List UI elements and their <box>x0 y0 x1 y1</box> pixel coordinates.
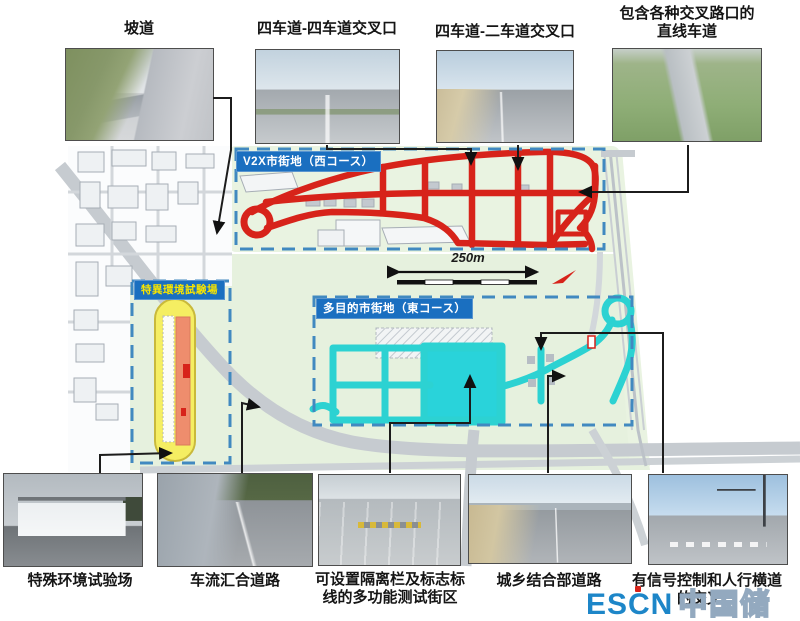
straight-lanes-photo <box>612 48 762 142</box>
east-course-label: 多目的市街地（東コース） <box>316 298 473 319</box>
multifunction-test-block-photo <box>318 474 461 566</box>
ramp-photo <box>65 48 214 141</box>
four-two-intersection-caption: 四车道-二车道交叉口 <box>405 23 605 41</box>
barrier-markers <box>358 522 420 528</box>
signal-crosswalk-intersection-photo <box>648 474 788 565</box>
watermark-site-name: 中国储能网 <box>678 581 800 621</box>
watermark-accent-icon <box>635 586 641 592</box>
four-four-intersection-caption: 四车道-四车道交叉口 <box>227 20 427 38</box>
special-environment-track <box>155 299 195 461</box>
urban-rural-road-photo <box>468 474 632 564</box>
special-env-label: 特異環境試験場 <box>134 280 225 300</box>
watermark-logo: ESCN <box>586 588 673 621</box>
merging-road-photo <box>157 473 313 567</box>
west-course-label: V2X市街地（西コース） <box>236 151 381 172</box>
watermark: ESCN 中国储能网 <box>586 581 800 621</box>
four-two-intersection-photo <box>436 50 574 143</box>
scale-label: 250m <box>438 250 498 265</box>
straight-lanes-caption: 包含各种交叉路口的 直线车道 <box>587 5 787 42</box>
ramp-caption: 坡道 <box>39 20 239 38</box>
special-environment-building-photo <box>3 473 143 567</box>
proving-ground-infographic: 坡道 四车道-四车道交叉口 四车道-二车道交叉口 包含各种交叉路口的 直线车道 … <box>0 0 800 621</box>
four-four-intersection-photo <box>255 49 400 144</box>
